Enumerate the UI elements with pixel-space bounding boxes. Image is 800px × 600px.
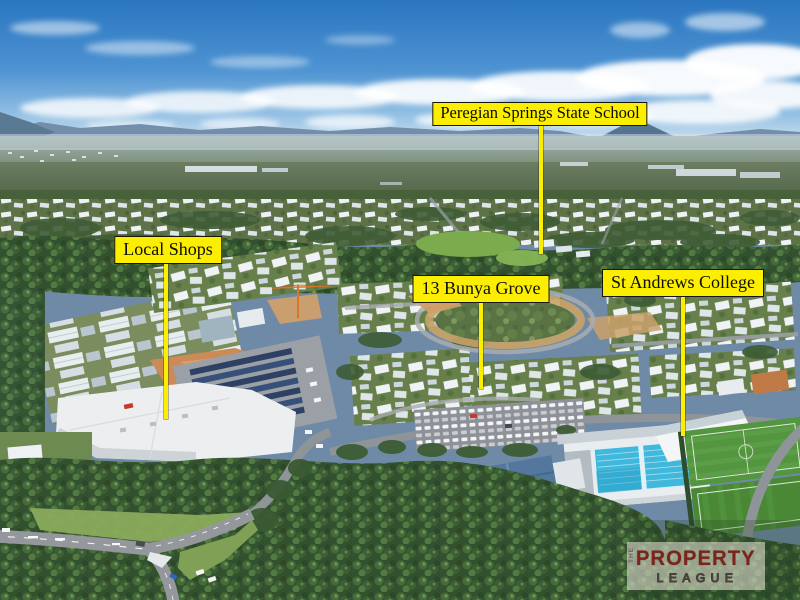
callout-line-college xyxy=(681,297,685,436)
callout-subject-property: 13 Bunya Grove xyxy=(413,275,550,303)
callout-line-school xyxy=(539,126,543,254)
callout-school: Peregian Springs State School xyxy=(432,102,647,126)
aerial-photo xyxy=(0,0,800,600)
distant-plain xyxy=(0,134,800,208)
callout-line-subject-property xyxy=(479,303,483,389)
aerial-photo-listing-image: Peregian Springs State School Local Shop… xyxy=(0,0,800,600)
callout-line-local-shops xyxy=(164,264,168,419)
watermark-league: LEAGUE xyxy=(654,572,739,584)
callout-local-shops: Local Shops xyxy=(114,236,222,264)
watermark-property: PROPERTY xyxy=(636,548,756,569)
watermark-logo: THE PROPERTY LEAGUE xyxy=(627,542,765,590)
watermark-the: THE xyxy=(628,547,635,563)
callout-college: St Andrews College xyxy=(602,269,764,297)
